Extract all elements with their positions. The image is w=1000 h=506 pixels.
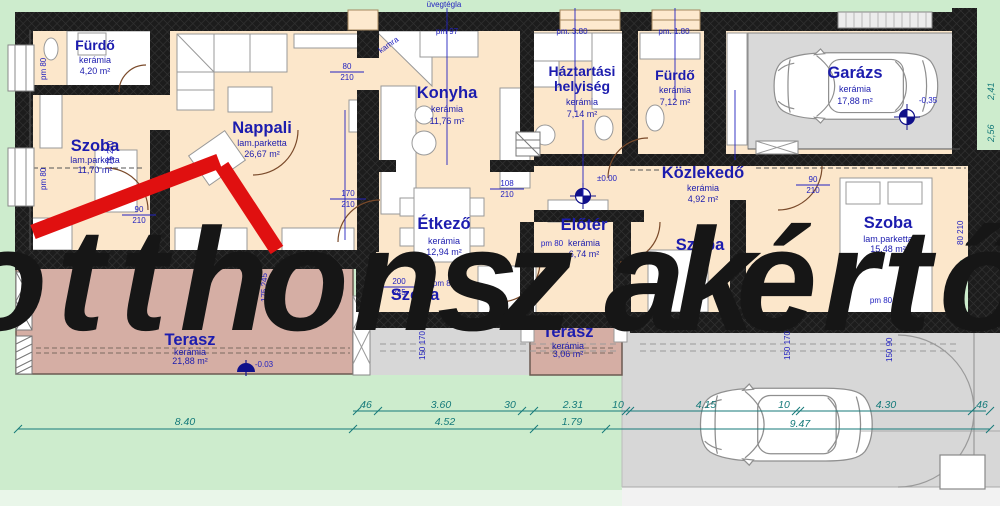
svg-text:30: 30: [504, 399, 516, 411]
svg-text:Szoba: Szoba: [71, 137, 120, 155]
svg-text:2,41: 2,41: [986, 82, 996, 101]
svg-text:210: 210: [806, 186, 820, 195]
svg-text:kerámia: kerámia: [687, 183, 719, 193]
svg-text:otthonszakértő: otthonszakértő: [0, 198, 1000, 361]
svg-text:4.52: 4.52: [435, 416, 456, 428]
svg-text:kerámia: kerámia: [79, 55, 111, 65]
svg-text:90: 90: [809, 175, 818, 184]
svg-text:kerámia: kerámia: [659, 85, 691, 95]
svg-text:8.40: 8.40: [175, 416, 196, 428]
svg-text:11,76 m²: 11,76 m²: [430, 116, 465, 126]
svg-text:26,67 m²: 26,67 m²: [244, 149, 280, 159]
svg-text:1.79: 1.79: [562, 416, 583, 428]
svg-text:üvegtégla: üvegtégla: [427, 0, 462, 9]
svg-text:108: 108: [500, 179, 514, 188]
svg-text:9.47: 9.47: [790, 418, 812, 430]
svg-text:±0.00: ±0.00: [597, 174, 618, 183]
svg-text:4,20 m²: 4,20 m²: [80, 66, 111, 76]
svg-text:10: 10: [778, 399, 790, 411]
svg-text:11,70 m²: 11,70 m²: [78, 165, 113, 175]
svg-text:kerámia: kerámia: [566, 97, 598, 107]
svg-text:10: 10: [612, 399, 624, 411]
svg-text:Közlekedő: Közlekedő: [662, 164, 745, 182]
svg-text:80: 80: [343, 62, 352, 71]
svg-text:lam.parketta: lam.parketta: [237, 138, 287, 148]
svg-text:kerámia: kerámia: [839, 84, 871, 94]
svg-text:Konyha: Konyha: [417, 84, 478, 102]
svg-text:3.60: 3.60: [431, 399, 452, 411]
svg-text:170: 170: [341, 189, 355, 198]
svg-text:pm. 3.80: pm. 3.80: [556, 27, 588, 36]
svg-text:7,14 m²: 7,14 m²: [567, 109, 598, 119]
svg-text:-0,35: -0,35: [919, 96, 938, 105]
svg-text:46: 46: [360, 399, 372, 411]
svg-text:4.30: 4.30: [876, 399, 897, 411]
svg-text:Háztartási: Háztartási: [549, 63, 616, 79]
svg-text:helyiség: helyiség: [554, 78, 610, 94]
svg-text:6,74 m²: 6,74 m²: [569, 249, 600, 259]
svg-text:46: 46: [976, 399, 988, 411]
svg-text:2,56: 2,56: [986, 124, 996, 143]
svg-text:Garázs: Garázs: [827, 64, 882, 82]
svg-text:kerámia: kerámia: [431, 104, 463, 114]
svg-text:pm. 1.80: pm. 1.80: [658, 27, 690, 36]
svg-text:7,12 m²: 7,12 m²: [660, 97, 691, 107]
svg-text:-0.03: -0.03: [255, 360, 274, 369]
svg-text:17,88 m²: 17,88 m²: [837, 96, 873, 106]
svg-text:210: 210: [340, 73, 354, 82]
svg-text:lam.parketta: lam.parketta: [70, 155, 120, 165]
svg-text:Fürdő: Fürdő: [655, 67, 695, 83]
svg-text:pm 80: pm 80: [39, 167, 48, 190]
svg-text:Fürdő: Fürdő: [75, 37, 115, 53]
svg-text:Nappali: Nappali: [232, 119, 292, 137]
svg-text:pm 80: pm 80: [39, 57, 48, 80]
svg-text:4.15: 4.15: [696, 399, 717, 411]
svg-text:2.31: 2.31: [562, 399, 583, 411]
